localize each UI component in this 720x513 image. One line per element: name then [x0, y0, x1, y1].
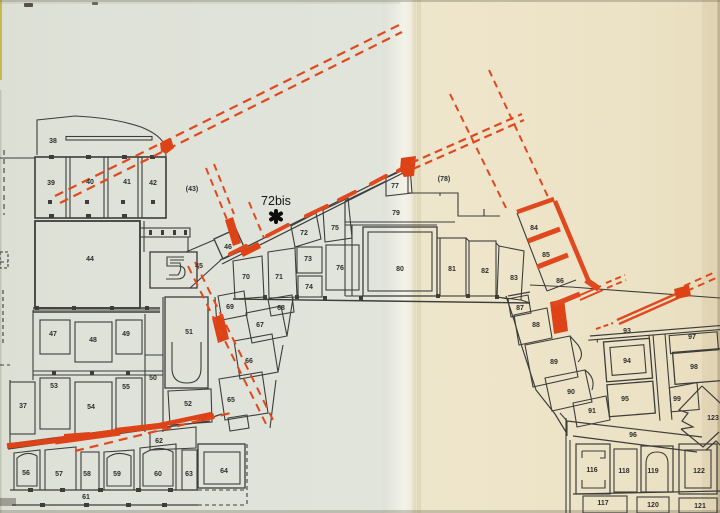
- svg-text:98: 98: [690, 364, 698, 371]
- svg-text:99: 99: [673, 396, 681, 403]
- svg-text:67: 67: [256, 322, 264, 329]
- svg-text:51: 51: [185, 329, 193, 336]
- svg-text:74: 74: [305, 284, 313, 291]
- svg-text:90: 90: [567, 389, 575, 396]
- svg-text:116: 116: [586, 467, 597, 474]
- svg-text:50: 50: [149, 375, 157, 382]
- svg-text:82: 82: [481, 268, 489, 275]
- svg-text:72bis: 72bis: [261, 194, 291, 208]
- svg-text:64: 64: [220, 468, 228, 475]
- svg-text:77: 77: [391, 183, 399, 190]
- svg-text:81: 81: [448, 266, 456, 273]
- svg-text:39: 39: [47, 180, 55, 187]
- svg-text:87: 87: [516, 305, 524, 312]
- svg-text:63: 63: [185, 471, 193, 478]
- svg-text:93: 93: [623, 328, 631, 335]
- svg-text:48: 48: [89, 337, 97, 344]
- svg-text:60: 60: [154, 471, 162, 478]
- svg-text:61: 61: [82, 494, 90, 501]
- svg-text:123: 123: [707, 415, 719, 422]
- svg-text:76: 76: [336, 265, 344, 272]
- svg-text:120: 120: [647, 502, 659, 509]
- svg-text:118: 118: [618, 468, 629, 475]
- svg-text:(78): (78): [438, 176, 450, 183]
- svg-text:79: 79: [392, 210, 400, 217]
- svg-text:68: 68: [277, 305, 285, 312]
- svg-text:37: 37: [19, 403, 27, 410]
- svg-text:59: 59: [113, 471, 121, 478]
- svg-text:73: 73: [304, 256, 312, 263]
- svg-text:45: 45: [195, 263, 203, 270]
- svg-text:119: 119: [647, 468, 658, 475]
- svg-text:57: 57: [55, 471, 63, 478]
- svg-text:53: 53: [50, 383, 58, 390]
- svg-text:88: 88: [532, 322, 540, 329]
- svg-text:41: 41: [123, 179, 131, 186]
- svg-text:96: 96: [629, 432, 637, 439]
- svg-text:83: 83: [510, 275, 518, 282]
- svg-text:44: 44: [86, 256, 94, 263]
- svg-text:84: 84: [530, 225, 538, 232]
- svg-text:65: 65: [227, 397, 235, 404]
- svg-text:69: 69: [226, 304, 234, 311]
- svg-text:47: 47: [49, 331, 57, 338]
- svg-text:97: 97: [688, 334, 696, 341]
- svg-text:94: 94: [623, 358, 631, 365]
- svg-text:72: 72: [300, 230, 308, 237]
- svg-text:52: 52: [184, 401, 192, 408]
- svg-text:121: 121: [694, 503, 706, 510]
- svg-text:56: 56: [22, 470, 30, 477]
- svg-text:40: 40: [86, 179, 94, 186]
- svg-text:55: 55: [122, 384, 130, 391]
- svg-text:122: 122: [693, 468, 705, 475]
- svg-text:62: 62: [155, 438, 163, 445]
- svg-text:54: 54: [87, 404, 95, 411]
- svg-text:(43): (43): [186, 186, 198, 193]
- svg-text:80: 80: [396, 266, 404, 273]
- svg-text:38: 38: [49, 138, 57, 145]
- svg-text:117: 117: [597, 500, 608, 507]
- svg-text:86: 86: [556, 278, 564, 285]
- svg-text:95: 95: [621, 396, 629, 403]
- svg-text:49: 49: [122, 331, 130, 338]
- svg-text:70: 70: [242, 274, 250, 281]
- svg-text:89: 89: [550, 359, 558, 366]
- svg-text:85: 85: [542, 252, 550, 259]
- svg-text:46: 46: [224, 244, 232, 251]
- svg-text:71: 71: [275, 274, 283, 281]
- svg-text:42: 42: [149, 180, 157, 187]
- svg-text:75: 75: [331, 225, 339, 232]
- svg-text:91: 91: [588, 408, 596, 415]
- svg-text:58: 58: [83, 471, 91, 478]
- svg-text:66: 66: [245, 358, 253, 365]
